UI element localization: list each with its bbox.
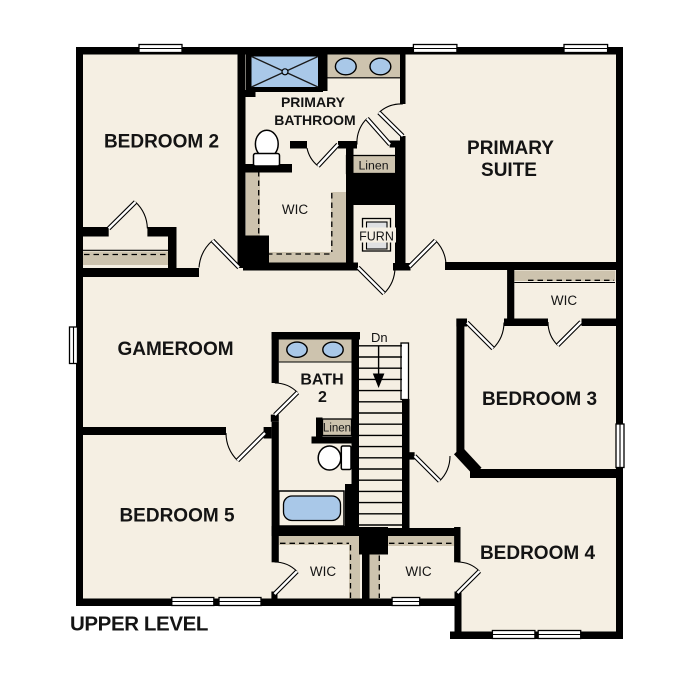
svg-text:BEDROOM 4: BEDROOM 4 xyxy=(480,543,596,564)
svg-text:WIC: WIC xyxy=(310,564,336,579)
svg-text:2: 2 xyxy=(318,389,327,406)
svg-text:PRIMARY: PRIMARY xyxy=(281,94,346,110)
svg-text:BEDROOM 2: BEDROOM 2 xyxy=(104,132,219,153)
svg-text:BATH: BATH xyxy=(300,372,343,389)
svg-text:SUITE: SUITE xyxy=(481,160,537,181)
svg-text:WIC: WIC xyxy=(551,293,577,308)
svg-text:BATHROOM: BATHROOM xyxy=(274,112,355,128)
svg-text:GAMEROOM: GAMEROOM xyxy=(117,339,233,360)
svg-text:UPPER LEVEL: UPPER LEVEL xyxy=(70,613,208,636)
svg-text:BEDROOM 5: BEDROOM 5 xyxy=(119,506,235,527)
svg-text:Linen: Linen xyxy=(323,423,351,435)
svg-text:FURN: FURN xyxy=(359,230,394,244)
svg-text:Linen: Linen xyxy=(358,159,388,173)
svg-text:Dn: Dn xyxy=(371,330,388,345)
svg-text:BEDROOM 3: BEDROOM 3 xyxy=(482,389,597,410)
svg-text:PRIMARY: PRIMARY xyxy=(467,138,554,159)
svg-text:WIC: WIC xyxy=(282,202,308,217)
svg-text:WIC: WIC xyxy=(405,564,431,579)
